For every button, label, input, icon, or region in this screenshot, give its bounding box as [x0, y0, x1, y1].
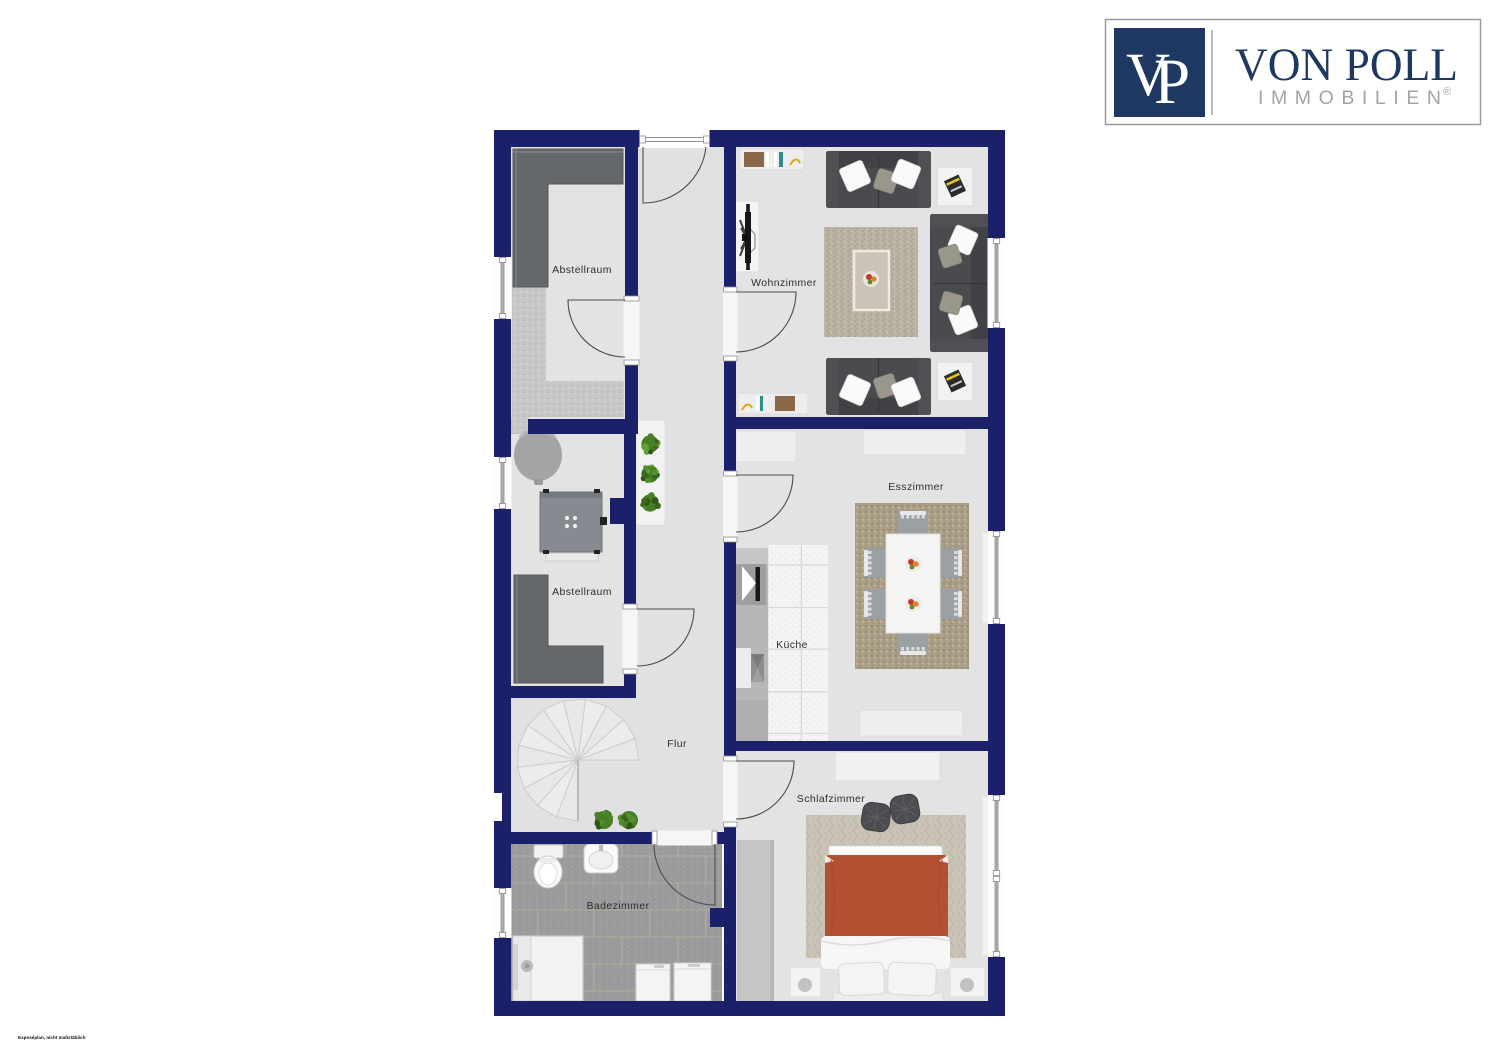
svg-text:Exposéplan, nicht maßstäblich: Exposéplan, nicht maßstäblich: [18, 1035, 86, 1040]
svg-text:Wohnzimmer: Wohnzimmer: [751, 277, 817, 289]
svg-text:Badezimmer: Badezimmer: [587, 900, 650, 912]
svg-text:Schlafzimmer: Schlafzimmer: [797, 793, 865, 805]
svg-text:IMMOBILIEN: IMMOBILIEN: [1258, 87, 1441, 109]
svg-text:Küche: Küche: [776, 639, 808, 651]
svg-text:Esszimmer: Esszimmer: [888, 481, 944, 493]
svg-text:Abstellraum: Abstellraum: [552, 264, 612, 276]
svg-text:Abstellraum: Abstellraum: [552, 586, 612, 598]
svg-text:P: P: [1154, 46, 1190, 118]
svg-text:VON POLL: VON POLL: [1235, 39, 1458, 91]
svg-text:Flur: Flur: [667, 738, 687, 750]
svg-text:®: ®: [1443, 86, 1451, 98]
